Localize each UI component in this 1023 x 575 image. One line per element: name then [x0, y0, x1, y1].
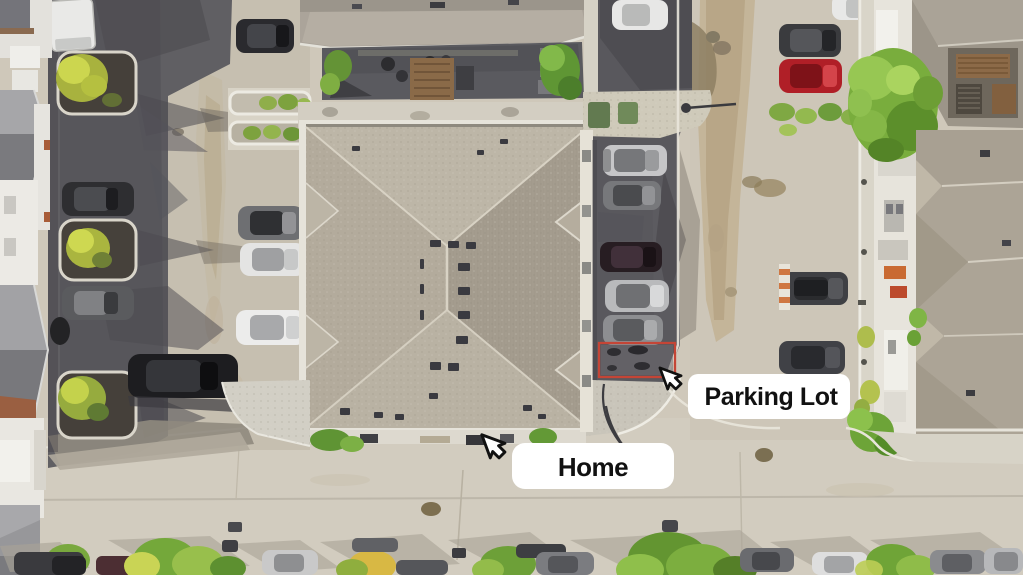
svg-text:Parking Lot: Parking Lot: [704, 383, 838, 411]
svg-text:Home: Home: [558, 452, 628, 482]
